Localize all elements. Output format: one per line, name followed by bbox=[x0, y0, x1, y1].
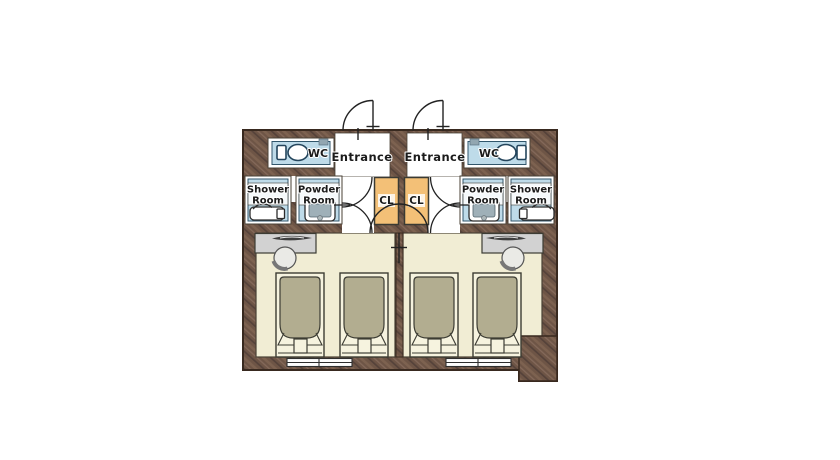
toilet-icon bbox=[277, 145, 308, 161]
chair-icon bbox=[502, 247, 525, 269]
svg-text:CL: CL bbox=[409, 195, 424, 207]
bed-icon bbox=[473, 273, 521, 357]
svg-text:Shower: Shower bbox=[510, 185, 552, 196]
floor-plan-drawing: WC WC Shower Room Powder Ro bbox=[0, 0, 840, 460]
corner-wall-block bbox=[519, 336, 557, 381]
entrance-label: Entrance bbox=[405, 150, 466, 164]
svg-text:Room: Room bbox=[515, 196, 547, 207]
powder-room-right: Powder Room bbox=[460, 176, 506, 224]
closet-left: CL bbox=[375, 178, 399, 225]
entrance-label: Entrance bbox=[332, 150, 393, 164]
bed-icon bbox=[340, 273, 388, 357]
wc-room-left: WC bbox=[268, 138, 334, 168]
window-icon bbox=[446, 359, 511, 367]
powder-room-left: Powder Room bbox=[296, 176, 342, 224]
wc-label: WC bbox=[479, 147, 499, 160]
svg-text:Powder: Powder bbox=[462, 185, 504, 196]
svg-text:Shower: Shower bbox=[247, 185, 289, 196]
cistern-box bbox=[319, 139, 328, 145]
svg-text:Powder: Powder bbox=[298, 185, 340, 196]
wc-label: WC bbox=[308, 147, 328, 160]
wc-room-right: WC bbox=[464, 138, 530, 168]
chair-icon bbox=[274, 247, 297, 269]
bed-icon bbox=[276, 273, 324, 357]
window-icon bbox=[287, 359, 352, 367]
shower-room-right: Shower Room bbox=[508, 176, 554, 224]
bed-icon bbox=[410, 273, 458, 357]
cistern-box bbox=[470, 139, 479, 145]
closet-right: CL bbox=[405, 178, 429, 225]
svg-text:Room: Room bbox=[467, 196, 499, 207]
toilet-icon bbox=[496, 145, 526, 161]
svg-text:Room: Room bbox=[252, 196, 284, 207]
shower-room-left: Shower Room bbox=[245, 176, 291, 224]
svg-text:Room: Room bbox=[303, 196, 335, 207]
floor-plan-canvas: WC WC Shower Room Powder Ro bbox=[0, 0, 840, 460]
